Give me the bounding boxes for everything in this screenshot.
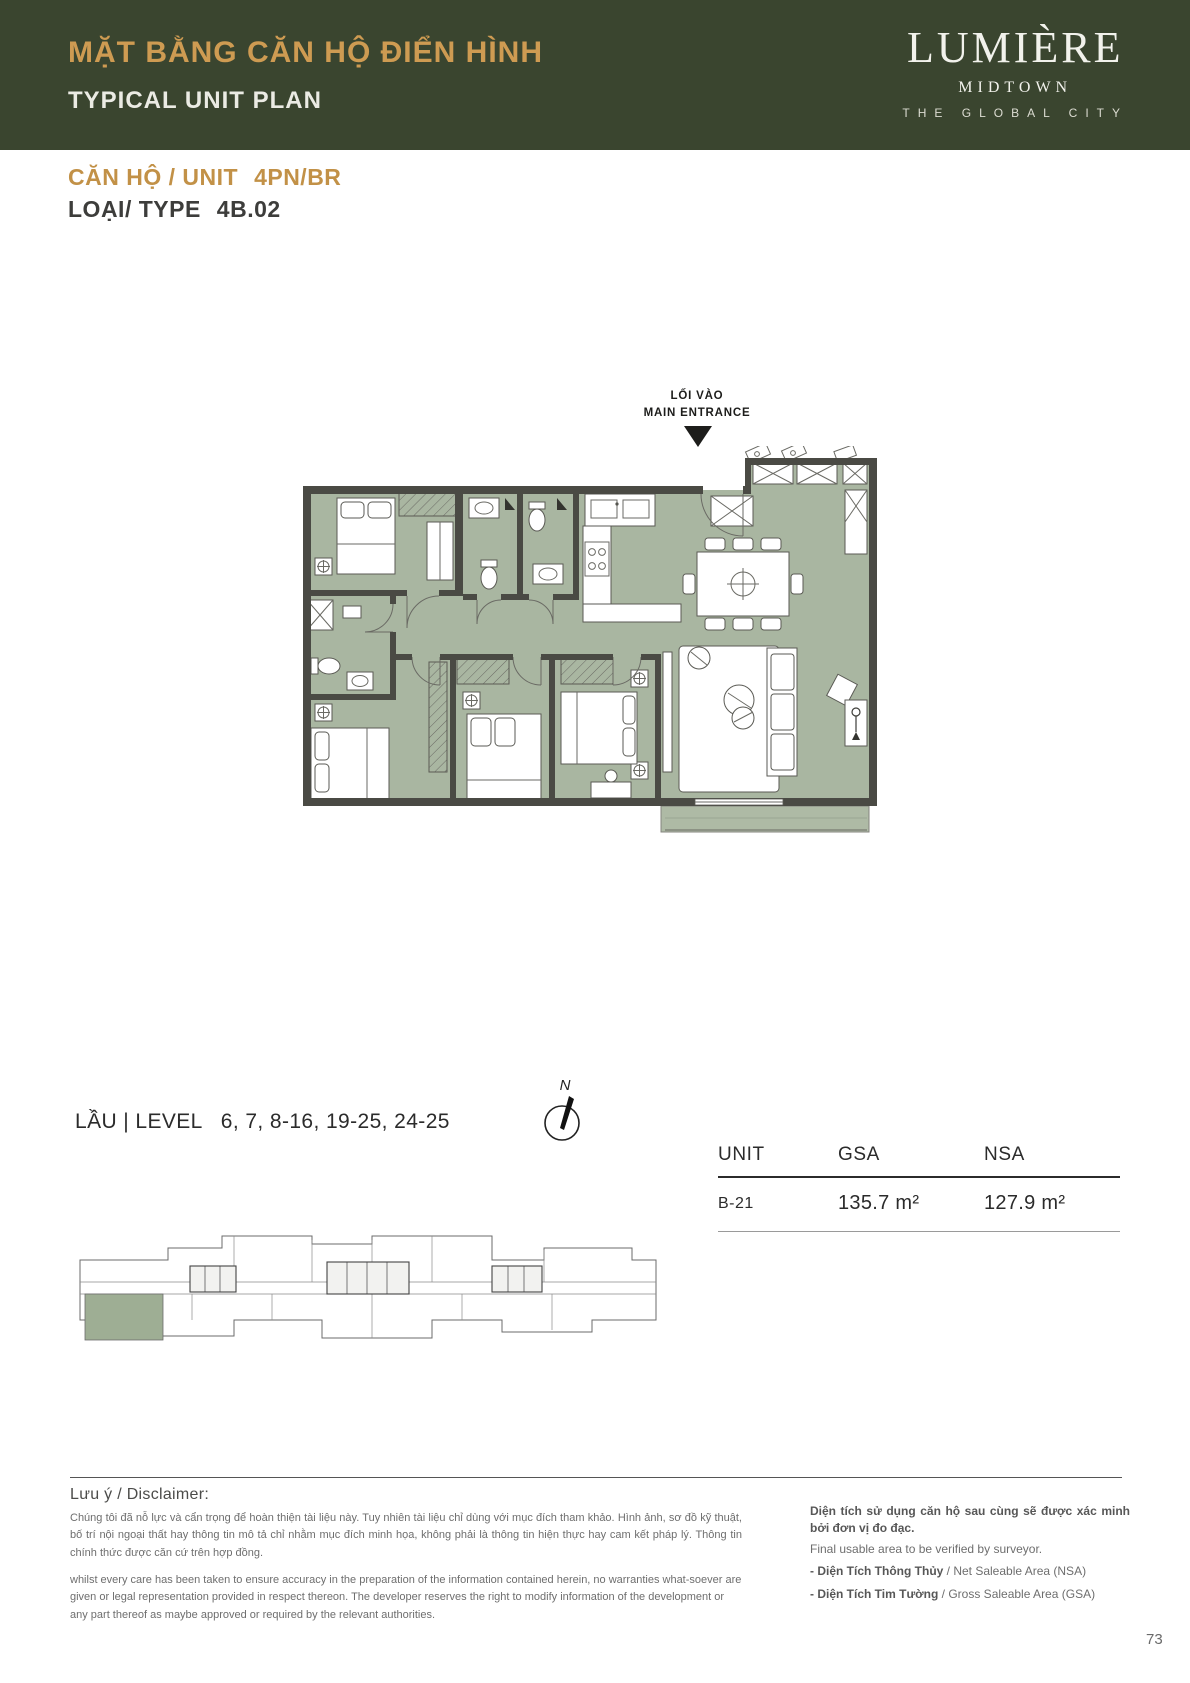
- header-banner: MẶT BẰNG CĂN HỘ ĐIỂN HÌNH TYPICAL UNIT P…: [0, 0, 1190, 150]
- table-row: B-21 135.7 m² 127.9 m²: [718, 1178, 1120, 1232]
- entrance-label: LỐI VÀO MAIN ENTRANCE: [617, 388, 777, 423]
- disclaimer-vi: Chúng tôi đã nỗ lực và cẩn trọng để hoàn…: [70, 1510, 742, 1562]
- compass-icon: N: [531, 1074, 595, 1152]
- ceiling-fan-icon: [631, 762, 648, 779]
- brand-tagline: THE GLOBAL CITY: [902, 106, 1128, 120]
- ceiling-fan-icon: [463, 692, 480, 709]
- area-table: UNIT GSA NSA B-21 135.7 m² 127.9 m²: [718, 1144, 1120, 1232]
- floor-plan-drawing: [295, 446, 885, 844]
- page-title-en: TYPICAL UNIT PLAN: [68, 87, 322, 115]
- area-notes: Diện tích sử dụng căn hộ sau cùng sẽ đượ…: [810, 1503, 1130, 1603]
- col-unit: UNIT: [718, 1144, 838, 1166]
- type-info-line: LOẠI/ TYPE4B.02: [68, 196, 281, 223]
- col-nsa: NSA: [984, 1144, 1120, 1166]
- disclaimer-heading: Lưu ý / Disclaimer:: [70, 1486, 209, 1504]
- area-note-nsa: - Diện Tích Thông Thủy / Net Saleable Ar…: [810, 1563, 1130, 1580]
- nsa-value: 127.9 m²: [984, 1192, 1120, 1215]
- highlighted-unit: [85, 1294, 163, 1340]
- area-note-en: Final usable area to be verified by surv…: [810, 1541, 1130, 1558]
- page-title-vi: MẶT BẰNG CĂN HỘ ĐIỂN HÌNH: [68, 36, 543, 70]
- unit-value: 4PN/BR: [254, 164, 341, 190]
- disclaimer-en: whilst every care has been taken to ensu…: [70, 1572, 742, 1624]
- brand-name: LUMIÈRE: [902, 26, 1128, 70]
- level-info: LẦU | LEVEL6, 7, 8-16, 19-25, 24-25: [75, 1110, 450, 1134]
- brochure-page: { "header": { "title_vi": "MẶT BẰNG CĂN …: [0, 0, 1190, 1683]
- unit-label: CĂN HỘ / UNIT: [68, 164, 238, 190]
- col-gsa: GSA: [838, 1144, 984, 1166]
- unit-info-line: CĂN HỘ / UNIT4PN/BR: [68, 164, 341, 191]
- brand-sub: MIDTOWN: [902, 79, 1128, 97]
- unit-code: B-21: [718, 1195, 838, 1213]
- area-note-gsa: - Diện Tích Tim Tường / Gross Saleable A…: [810, 1586, 1130, 1603]
- entrance-label-vi: LỐI VÀO: [617, 388, 777, 405]
- area-table-header: UNIT GSA NSA: [718, 1144, 1120, 1178]
- floor-plan-section: LỐI VÀO MAIN ENTRANCE: [295, 386, 885, 846]
- area-note-vi: Diện tích sử dụng căn hộ sau cùng sẽ đượ…: [810, 1503, 1130, 1538]
- footer-divider: [70, 1477, 1122, 1478]
- key-plan-drawing: [72, 1220, 664, 1354]
- type-value: 4B.02: [217, 196, 281, 222]
- svg-text:N: N: [560, 1077, 571, 1094]
- page-number: 73: [1146, 1631, 1163, 1648]
- dining-set: [683, 538, 803, 630]
- level-values: 6, 7, 8-16, 19-25, 24-25: [221, 1110, 450, 1133]
- ceiling-fan-icon: [631, 670, 648, 687]
- type-label: LOẠI/ TYPE: [68, 196, 201, 222]
- level-label: LẦU | LEVEL: [75, 1110, 203, 1133]
- entrance-label-en: MAIN ENTRANCE: [617, 405, 777, 422]
- entrance-arrow-icon: [684, 426, 712, 447]
- ceiling-fan-icon: [315, 558, 332, 575]
- gsa-value: 135.7 m²: [838, 1192, 984, 1215]
- ceiling-fan-icon: [315, 704, 332, 721]
- brand-logo: LUMIÈRE MIDTOWN THE GLOBAL CITY: [902, 26, 1128, 120]
